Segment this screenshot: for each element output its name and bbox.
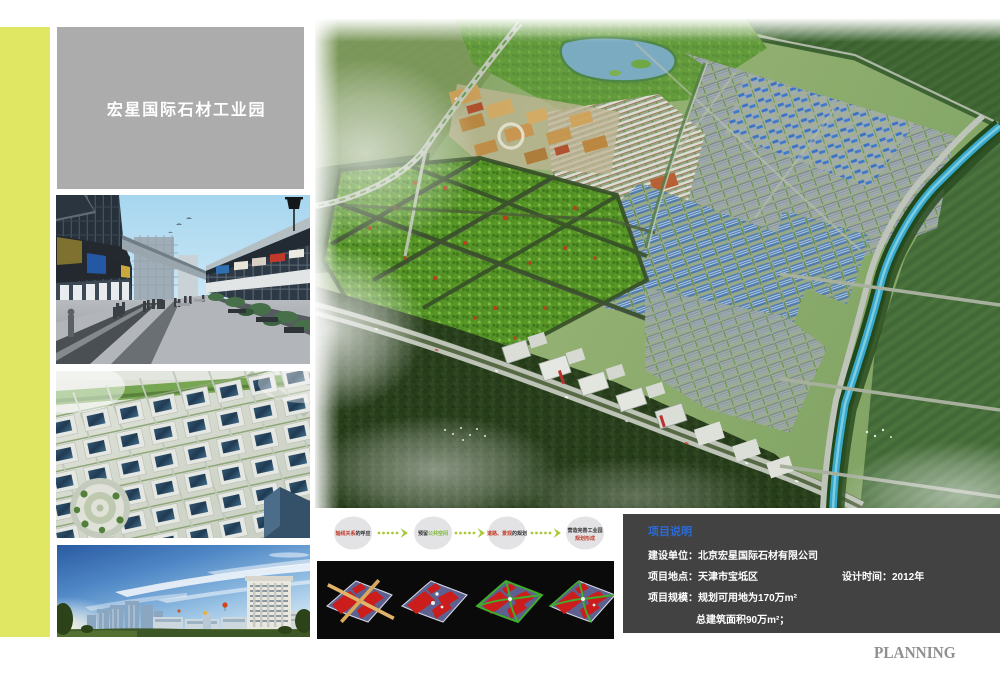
svg-text:营造完善工业园: 营造完善工业园 [567, 527, 602, 534]
svg-text:轴线关系的呼应: 轴线关系的呼应 [335, 530, 370, 537]
svg-text:规划形成: 规划形成 [575, 535, 595, 542]
svg-text:预留公共空间: 预留公共空间 [418, 530, 448, 537]
svg-text:道路、景观的规划: 道路、景观的规划 [487, 530, 527, 537]
